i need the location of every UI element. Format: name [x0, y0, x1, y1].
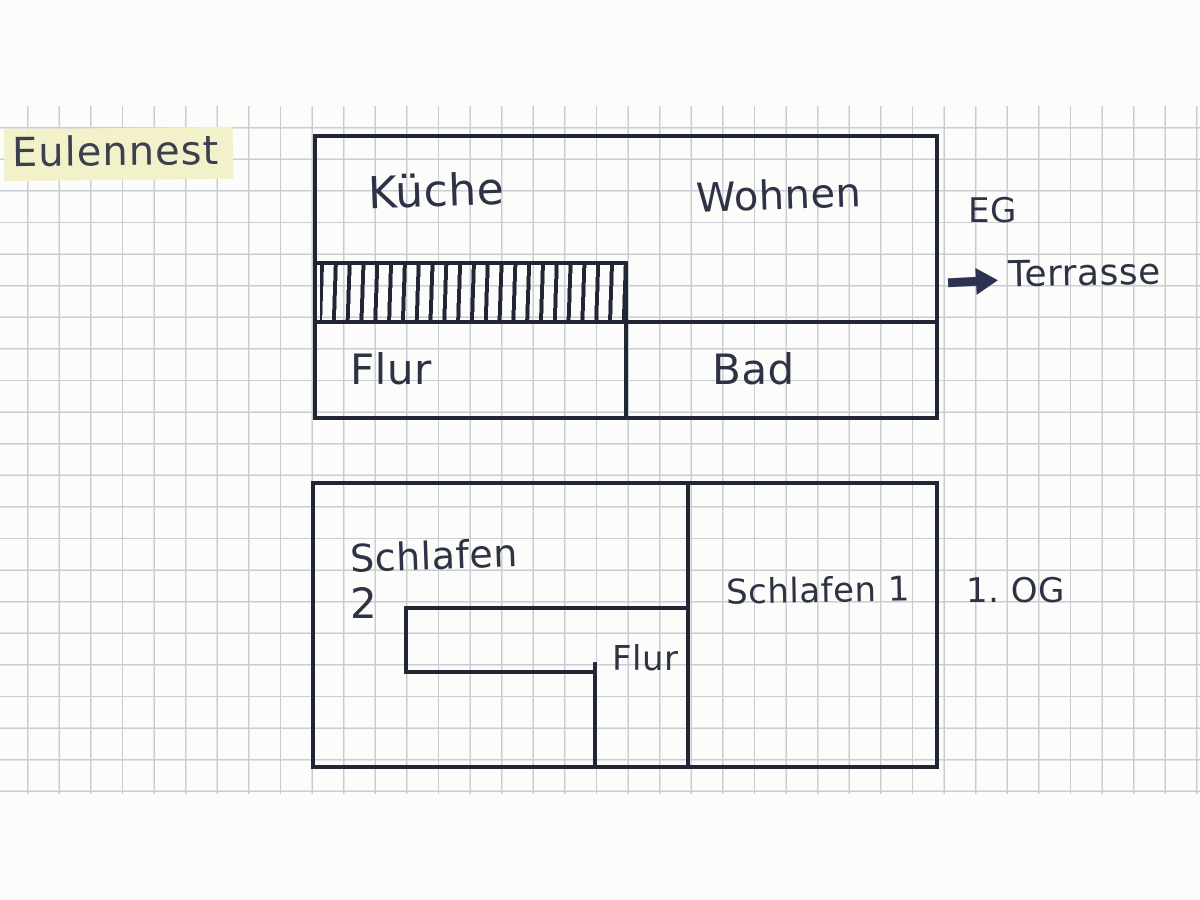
room-label-flur-og: Flur	[612, 642, 679, 676]
og-flur-bottom-wall	[404, 670, 597, 674]
floor-label-eg: EG	[968, 194, 1017, 228]
arrow-right-icon	[945, 264, 1001, 300]
terrasse-label: Terrasse	[1008, 255, 1161, 294]
room-label-schlafen2-line1: Schlafen	[349, 534, 518, 578]
room-label-bad: Bad	[712, 349, 795, 391]
og-flur-left-wall	[404, 606, 408, 674]
room-label-schlafen1: Schlafen 1	[726, 572, 911, 609]
room-label-schlafen2-line2: 2	[350, 583, 377, 625]
floorplan-sketch-page: Eulennest Küche Wohnen Flur Bad EG Terra…	[0, 0, 1200, 900]
og-flur-right-wall	[593, 662, 597, 767]
plan-title-highlight: Eulennest	[4, 127, 234, 181]
room-label-flur-eg: Flur	[350, 349, 432, 391]
room-label-kueche: Küche	[367, 168, 505, 217]
og-schlafen1-divider-wall	[686, 483, 690, 767]
og-flur-top-wall	[404, 606, 690, 610]
eg-stairs-hatch	[315, 261, 626, 323]
eg-flur-bad-divider-wall	[624, 261, 628, 419]
floor-label-og: 1. OG	[966, 574, 1065, 608]
plan-title: Eulennest	[12, 128, 220, 176]
room-label-wohnen: Wohnen	[695, 173, 862, 219]
